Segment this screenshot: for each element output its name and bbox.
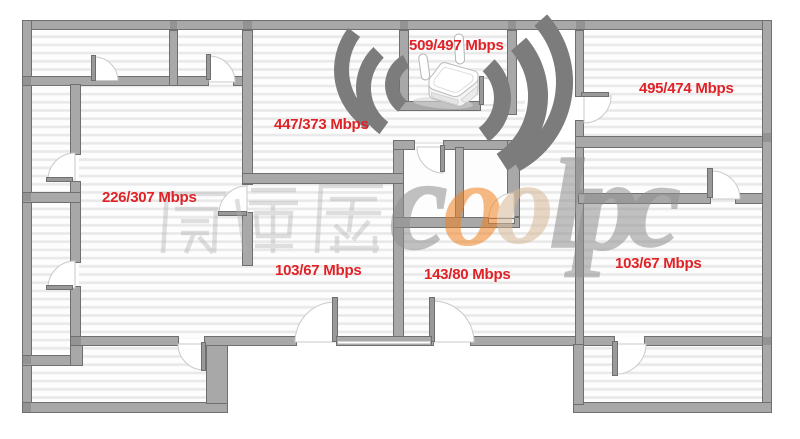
svg-text:c: c [390,133,448,277]
svg-text:447/373 Mbps: 447/373 Mbps [274,116,369,133]
svg-text:495/474 Mbps: 495/474 Mbps [639,80,734,97]
svg-text:c: c [627,138,681,273]
svg-text:103/67 Mbps: 103/67 Mbps [615,255,701,272]
svg-text:103/67 Mbps: 103/67 Mbps [275,262,361,279]
svg-text:143/80 Mbps: 143/80 Mbps [424,266,510,283]
svg-text:o: o [495,138,554,269]
svg-text:509/497 Mbps: 509/497 Mbps [409,37,504,54]
svg-text:226/307 Mbps: 226/307 Mbps [102,189,197,206]
